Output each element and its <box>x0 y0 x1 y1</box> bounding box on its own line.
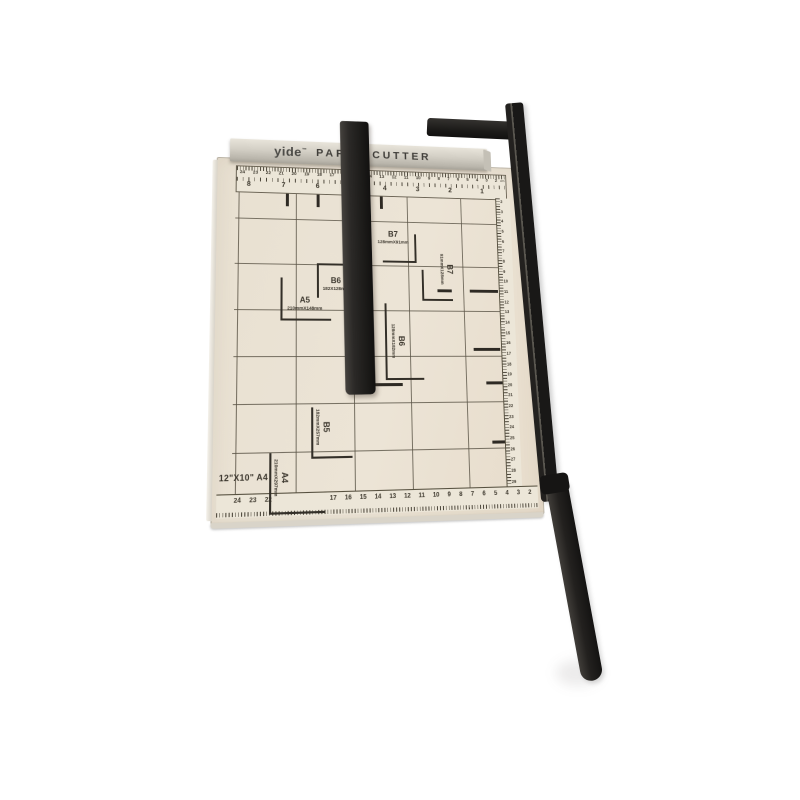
size-dimensions: 182mmX257mm <box>315 401 321 453</box>
label-a4-vertical: A4 210mmX297mm <box>273 448 289 509</box>
ruler-number: 16 <box>506 341 511 345</box>
ruler-number: 2 <box>448 188 452 196</box>
ruler-number: 4 <box>383 185 387 194</box>
size-label: B5 <box>321 401 331 453</box>
ruler-number: 18 <box>507 362 512 366</box>
ruler-number: 2 <box>528 490 532 496</box>
ruler-number: 7 <box>502 250 506 254</box>
alignment-tick <box>380 195 383 209</box>
ruler-number: 3 <box>485 178 488 184</box>
ruler-number: 13 <box>505 310 510 314</box>
size-dimensions: 210mmX297mm <box>273 448 279 508</box>
ruler-unit-label: cm <box>500 179 505 183</box>
size-label: A4 <box>279 448 289 508</box>
ruler-number: 9 <box>428 176 431 182</box>
ruler-number: 24 <box>509 426 514 430</box>
ruler-number: 10 <box>504 280 509 284</box>
ruler-number: 10 <box>433 492 440 498</box>
cutter-handle <box>545 479 604 683</box>
ruler-number: 18 <box>317 172 322 178</box>
ruler-number: 5 <box>494 491 498 497</box>
ruler-number: 17 <box>329 173 334 179</box>
ruler-number: 26 <box>510 447 515 451</box>
ruler-number: 6 <box>457 177 460 183</box>
ruler-number: 13 <box>379 175 384 181</box>
label-b7-horizontal: B7 128mmX91mm <box>371 230 416 245</box>
size-label: B7 <box>444 242 455 298</box>
label-b5-vertical: B5 182mmX257mm <box>315 401 331 453</box>
ruler-number: 17 <box>330 495 337 502</box>
ruler-number: 11 <box>419 493 426 500</box>
ruler-number: 2 <box>500 200 504 204</box>
ruler-number: 3 <box>501 210 505 214</box>
ruler-number: 15 <box>506 331 511 335</box>
size-dimensions: 210mmX148mm <box>275 305 334 311</box>
label-a5: A5 210mmX148mm <box>275 295 334 311</box>
ruler-number: 21 <box>279 171 284 177</box>
alignment-tick <box>317 193 320 207</box>
ruler-number: 1 <box>480 189 484 197</box>
alignment-tick <box>474 348 501 350</box>
ruler-number: 22 <box>509 404 514 408</box>
ruler-number: 12 <box>404 493 411 500</box>
paper-cutter: 24232221201918171615141312111098765432 c… <box>205 130 548 510</box>
ruler-number: 6 <box>482 491 486 497</box>
ruler-number: 20 <box>508 383 513 387</box>
ruler-number: 6 <box>316 183 320 192</box>
ruler-number: 4 <box>501 220 505 224</box>
ruler-number: 4 <box>505 490 509 496</box>
ruler-number: 24 <box>240 170 245 176</box>
ruler-number: 23 <box>509 415 514 419</box>
ruler-number: 3 <box>416 187 420 195</box>
ruler-number: 7 <box>282 182 286 191</box>
ruler-number: 6 <box>502 240 506 244</box>
ruler-number: 21 <box>508 394 513 398</box>
ruler-number: 10 <box>416 176 421 182</box>
ruler-number: 13 <box>389 494 396 501</box>
ruler-number: 19 <box>507 373 512 377</box>
ruler-number: 11 <box>504 290 509 294</box>
ruler-number: 7 <box>447 177 450 183</box>
ruler-number: 8 <box>247 181 251 190</box>
ruler-number: 17 <box>506 352 511 356</box>
ruler-number: 29 <box>512 480 517 484</box>
ruler-number: 14 <box>375 494 382 501</box>
ruler-number: 28 <box>511 469 516 473</box>
ruler-number: 22 <box>266 171 271 177</box>
ruler-number: 16 <box>345 495 352 502</box>
ruler-number: 23 <box>253 170 258 176</box>
ruler-number: 2 <box>495 179 498 185</box>
alignment-tick <box>470 290 498 293</box>
cutting-board <box>210 157 544 526</box>
ruler-number: 8 <box>459 492 463 498</box>
ruler-number: 23 <box>249 498 256 505</box>
ruler-number: 20 <box>291 172 296 178</box>
ruler-number: 7 <box>470 491 474 497</box>
ruler-number: 12 <box>504 300 509 304</box>
ruler-number: 12 <box>392 175 397 181</box>
ruler-number: 15 <box>360 495 367 502</box>
ruler-number: 11 <box>404 175 409 181</box>
ruler-number: 27 <box>511 458 516 462</box>
grid-line-vertical <box>296 192 297 492</box>
ruler-number: 14 <box>505 321 510 325</box>
size-dimensions: 128mmX91mm <box>371 239 415 245</box>
label-b6-vertical: B6 128mmX182mm <box>390 307 406 375</box>
ruler-number: 8 <box>503 260 507 264</box>
alignment-tick <box>286 192 289 206</box>
ruler-number: 8 <box>438 177 441 183</box>
board-size-note: 12"X10" A4 <box>219 473 268 484</box>
ruler-number: 5 <box>501 230 505 234</box>
ruler-number: 3 <box>516 490 520 496</box>
ruler-number: 5 <box>466 178 469 184</box>
ruler-number: 4 <box>476 178 479 184</box>
ruler-number: 25 <box>510 436 515 440</box>
size-label: A5 <box>275 295 334 305</box>
size-label: B6 <box>396 307 407 375</box>
ruler-number: 19 <box>304 172 309 178</box>
label-b7-vertical: B7 91mmX128mm <box>439 242 455 298</box>
ruler-number: 24 <box>234 498 241 505</box>
ruler-number: 9 <box>503 270 507 274</box>
ruler-number: 9 <box>447 492 451 498</box>
